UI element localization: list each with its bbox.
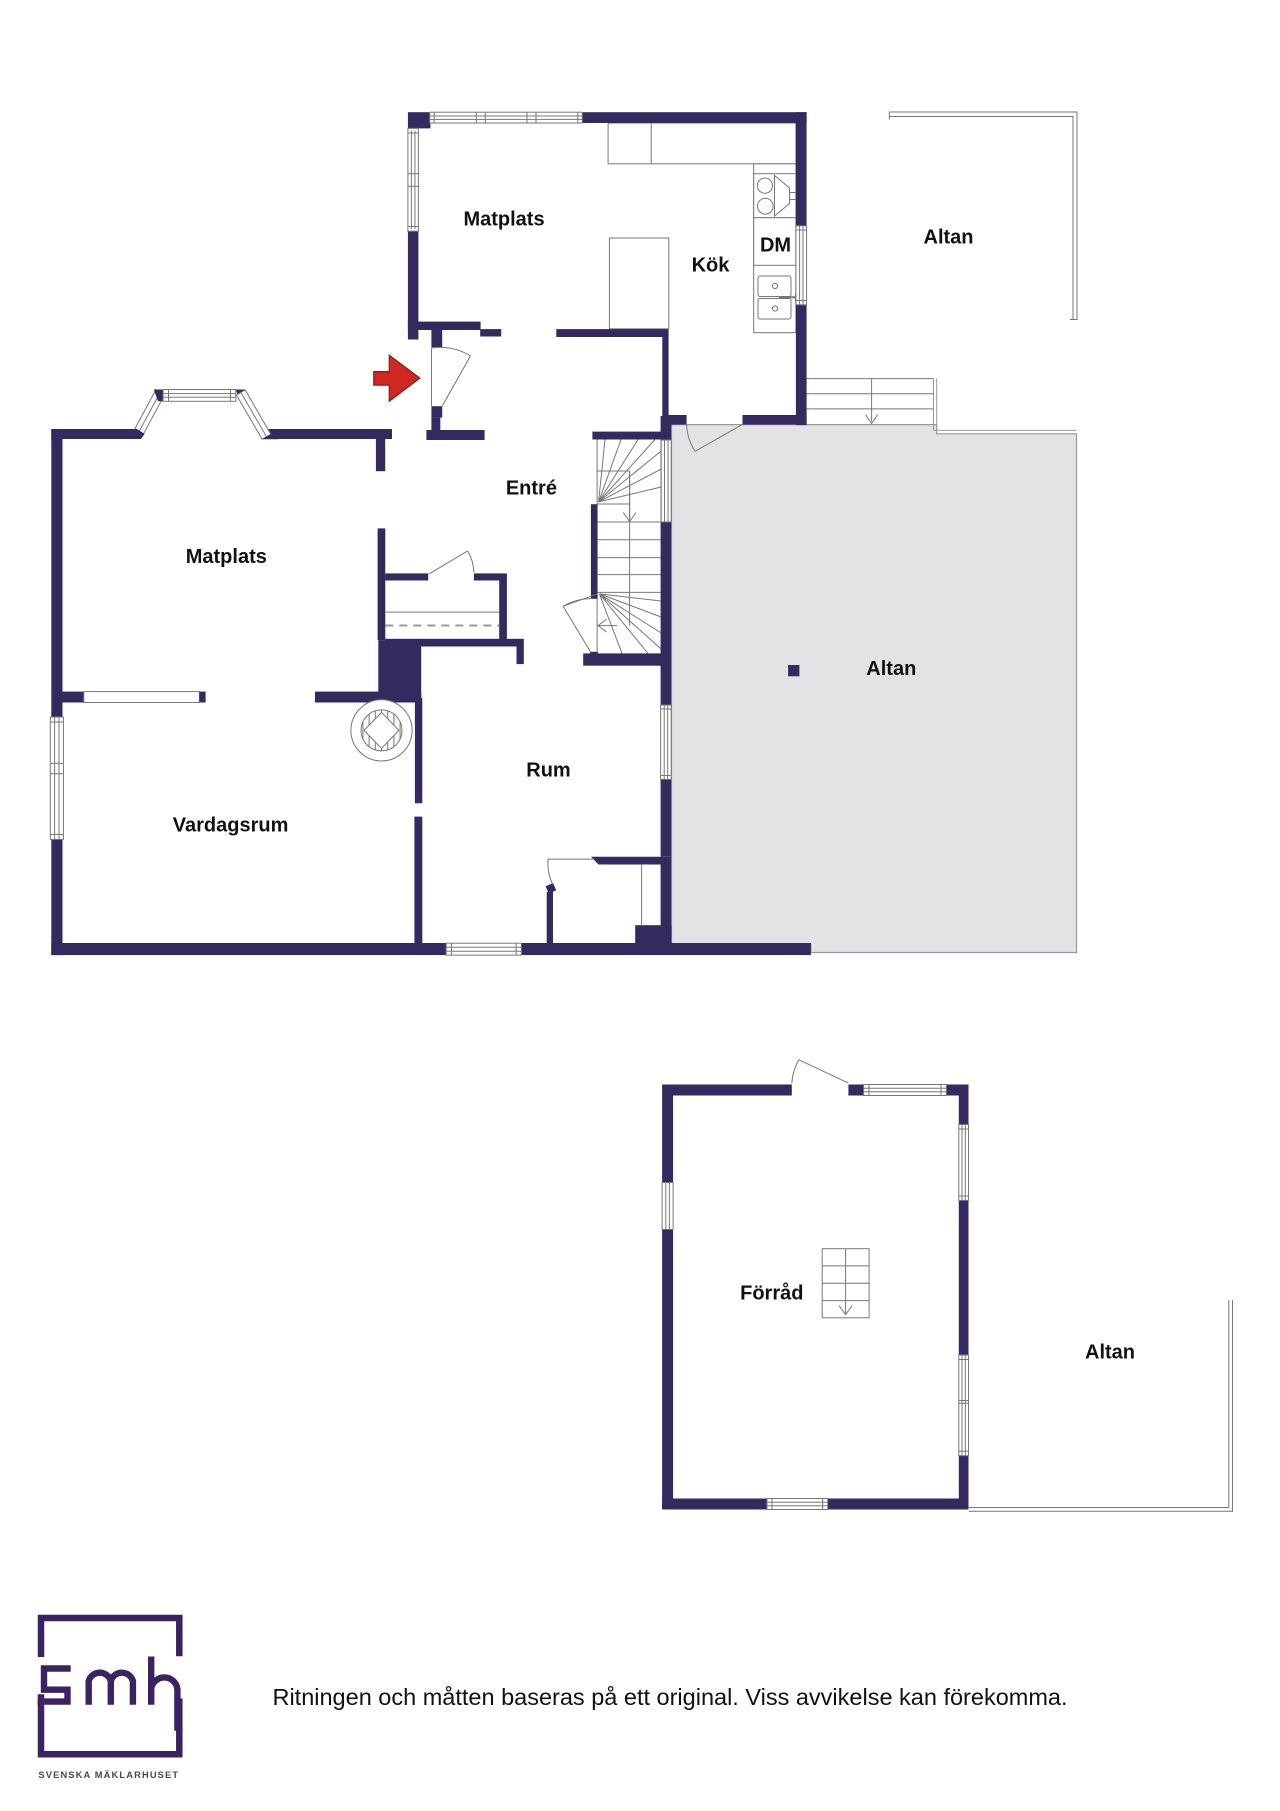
svg-text:Altan: Altan [924,227,974,249]
svg-text:DM: DM [760,235,791,257]
svg-text:Rum: Rum [526,760,570,782]
svg-text:Altan: Altan [1085,1342,1135,1364]
svg-text:SVENSKA MÄKLARHUSET: SVENSKA MÄKLARHUSET [38,1770,179,1780]
svg-text:Entré: Entré [506,478,557,500]
svg-text:Ritningen och måtten baseras p: Ritningen och måtten baseras på ett orig… [272,1684,1067,1710]
svg-text:Matplats: Matplats [463,209,544,231]
svg-text:Kök: Kök [692,255,731,277]
svg-text:Matplats: Matplats [186,546,267,568]
svg-text:Förråd: Förråd [740,1282,803,1305]
svg-text:Altan: Altan [866,658,916,680]
svg-text:Vardagsrum: Vardagsrum [173,815,289,837]
